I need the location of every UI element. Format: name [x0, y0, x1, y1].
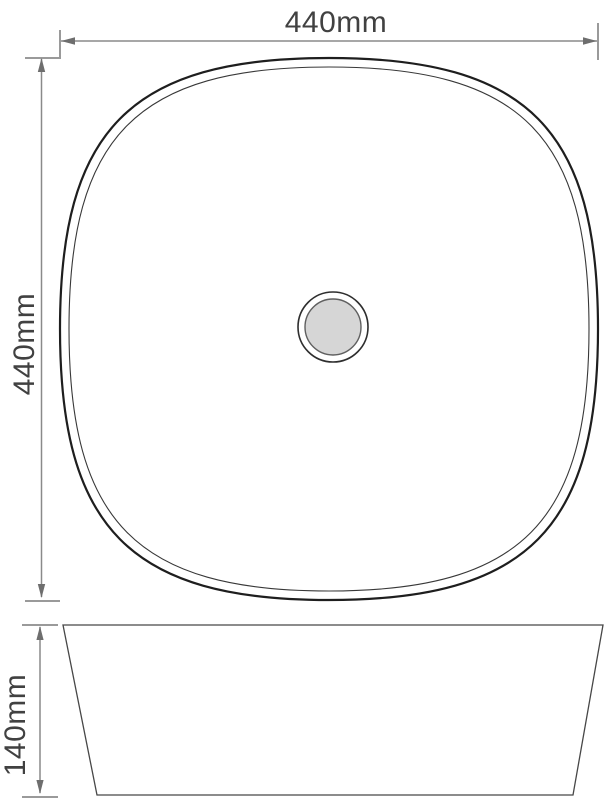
basin-dimension-drawing: 440mm 440mm 140mm: [0, 0, 608, 800]
extension-line-top-left-corner: [25, 30, 60, 58]
dimension-arrow-up-icon: [38, 58, 45, 72]
top-depth-dimension: 440mm: [8, 58, 60, 601]
basin-side-profile: [63, 625, 603, 795]
top-depth-dimension-label: 440mm: [8, 293, 41, 396]
side-view: [63, 625, 603, 795]
top-width-dimension: 440mm: [25, 6, 598, 60]
dimension-arrow-down-icon: [38, 584, 45, 598]
technical-drawing-canvas: 440mm 440mm 140mm: [0, 0, 608, 800]
side-height-dimension: 140mm: [0, 625, 58, 797]
dimension-arrow-left-icon: [61, 37, 75, 44]
side-height-dimension-label: 140mm: [0, 674, 32, 777]
drain-hole: [305, 299, 361, 355]
dimension-arrow-right-icon: [583, 37, 597, 44]
top-view: [60, 58, 598, 600]
dimension-arrow-down-icon: [36, 780, 43, 794]
top-width-dimension-label: 440mm: [285, 6, 388, 39]
dimension-arrow-up-icon: [36, 626, 43, 640]
